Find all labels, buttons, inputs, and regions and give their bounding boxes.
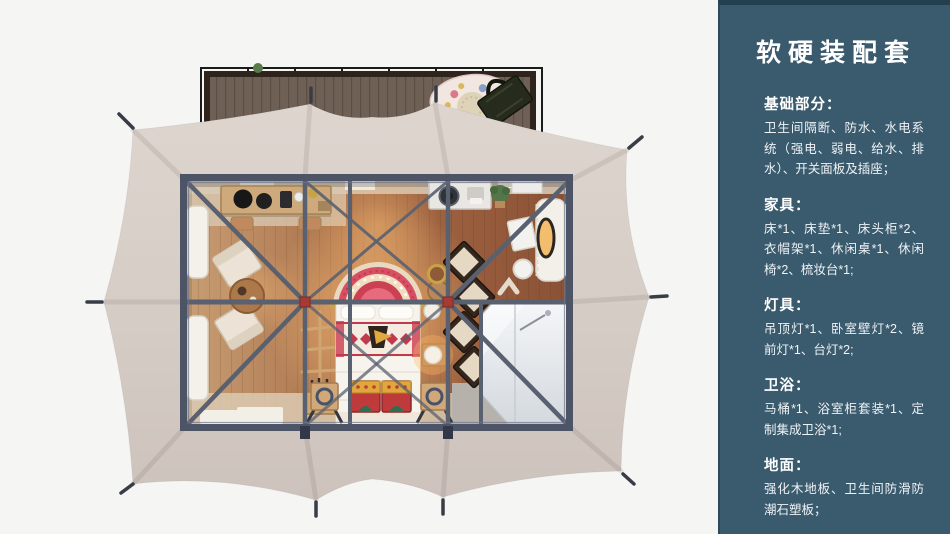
section-lighting: 灯具： 吊顶灯*1、卧室壁灯*2、镜前灯*1、台灯*2;: [764, 294, 924, 360]
coffee-grinder: [280, 191, 292, 208]
shower-head: [545, 310, 551, 316]
section-heading: 家具：: [764, 194, 924, 215]
section-basics: 基础部分： 卫生间隔断、防水、水电系统（强电、弱电、给水、排水）、开关面板及插座…: [764, 93, 924, 180]
section-heading: 基础部分：: [764, 93, 924, 114]
section-heading: 地面：: [764, 454, 924, 475]
section-body: 床*1、床垫*1、床头柜*2、衣帽架*1、休闲桌*1、休闲椅*2、梳妆台*1;: [764, 219, 924, 281]
post-base: [300, 426, 310, 439]
shower-enclosure: [481, 300, 569, 424]
tent-top-view-svg: [0, 0, 718, 534]
window: [187, 206, 208, 278]
window: [187, 316, 208, 400]
tent-top-view-render: [0, 0, 718, 534]
hat: [234, 190, 253, 209]
section-heading: 灯具：: [764, 294, 924, 315]
section-body: 强化木地板、卫生间防滑防潮石塑板；: [764, 479, 924, 520]
stool: [299, 217, 321, 230]
panel-title: 软硬装配套: [748, 33, 924, 69]
shelf: [512, 182, 542, 193]
section-heading: 卫浴：: [764, 374, 924, 395]
pillow: [379, 306, 413, 319]
section-body: 马桶*1、浴室柜套装*1、定制集成卫浴*1;: [764, 399, 924, 440]
section-bathroom: 卫浴： 马桶*1、浴室柜套装*1、定制集成卫浴*1;: [764, 374, 924, 440]
round-mirror: [429, 266, 446, 283]
vanity-stool: [514, 260, 533, 279]
side-table: [230, 279, 264, 313]
bathroom-vanity: [429, 182, 491, 209]
section-flooring: 地面： 强化木地板、卫生间防滑防潮石塑板；: [764, 454, 924, 520]
spec-panel: 软硬装配套 基础部分： 卫生间隔断、防水、水电系统（强电、弱电、给水、排水）、开…: [718, 0, 950, 534]
pillow: [341, 306, 375, 319]
hat: [256, 193, 272, 209]
section-body: 吊顶灯*1、卧室壁灯*2、镜前灯*1、台灯*2;: [764, 319, 924, 360]
deck-plant: [253, 63, 263, 73]
frame-hub: [443, 297, 453, 307]
frame-hub: [300, 297, 310, 307]
section-body: 卫生间隔断、防水、水电系统（强电、弱电、给水、排水）、开关面板及插座；: [764, 118, 924, 180]
page: 软硬装配套 基础部分： 卫生间隔断、防水、水电系统（强电、弱电、给水、排水）、开…: [0, 0, 950, 534]
mirror: [538, 219, 554, 257]
post-base: [443, 426, 453, 439]
section-furniture: 家具： 床*1、床垫*1、床头柜*2、衣帽架*1、休闲桌*1、休闲椅*2、梳妆台…: [764, 194, 924, 281]
